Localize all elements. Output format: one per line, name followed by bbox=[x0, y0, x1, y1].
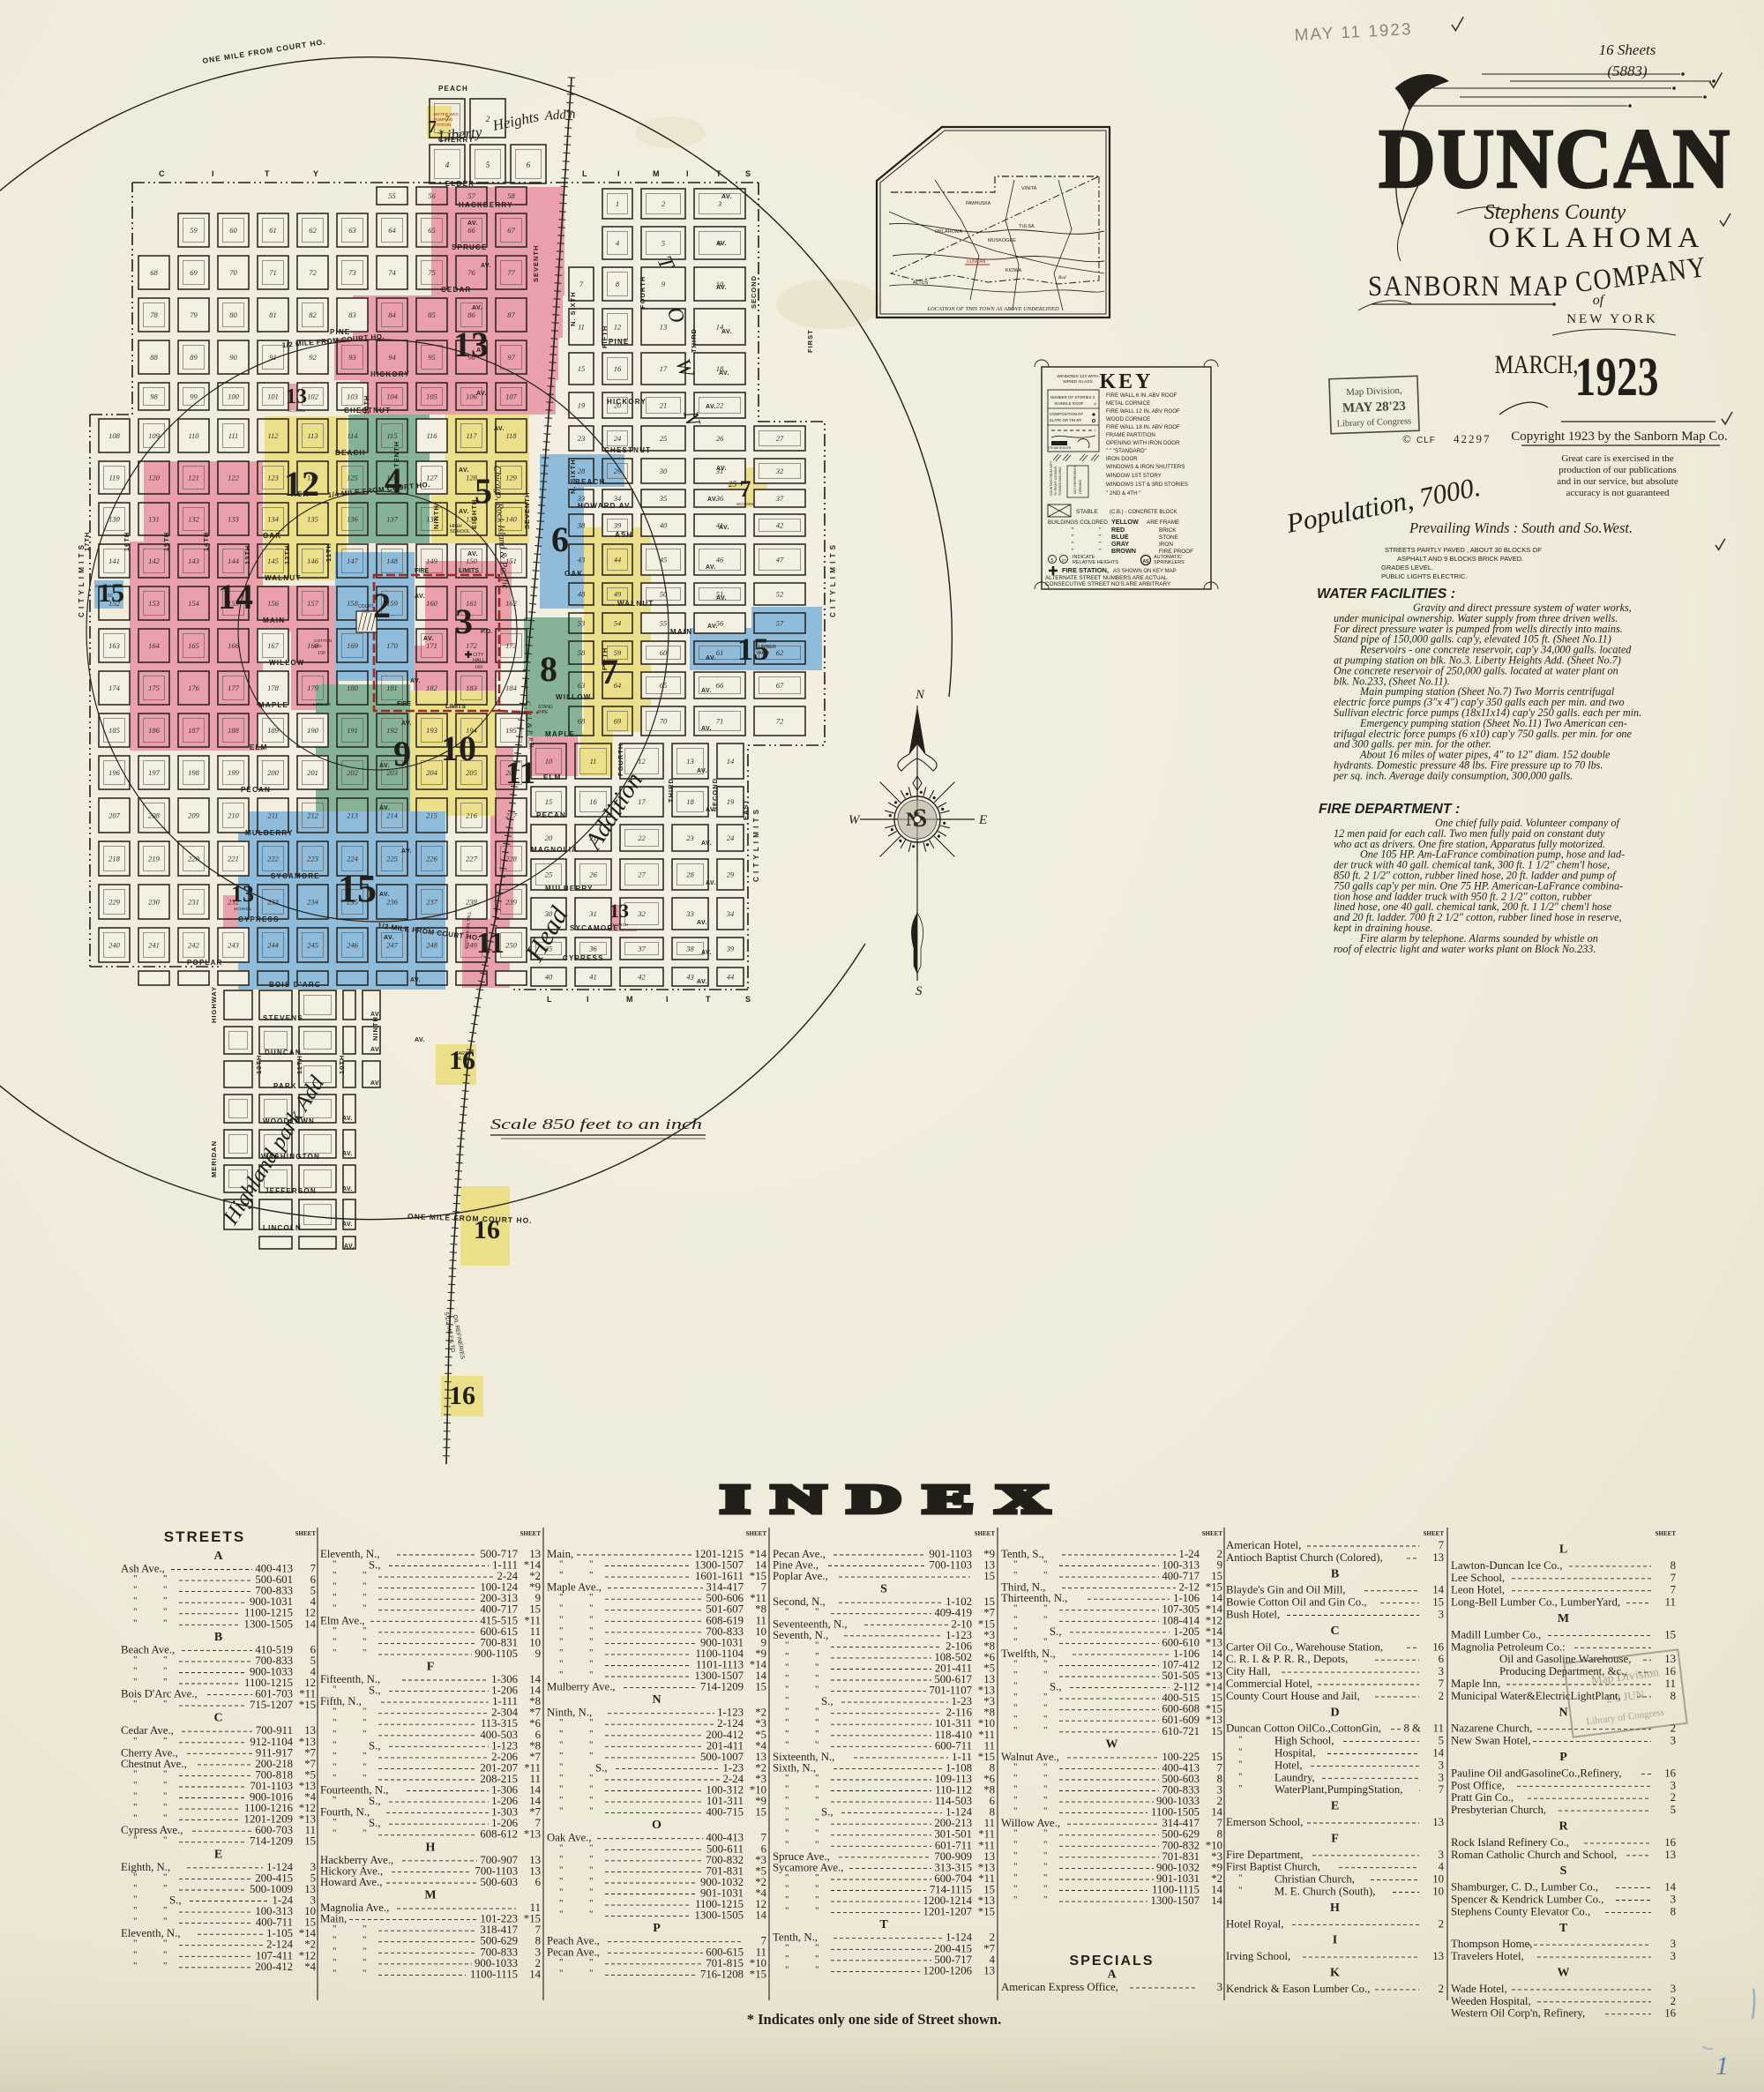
svg-text:171: 171 bbox=[426, 641, 437, 650]
svg-text:14: 14 bbox=[304, 1618, 316, 1630]
svg-text:7: 7 bbox=[1671, 1572, 1677, 1584]
svg-text:46: 46 bbox=[716, 556, 724, 564]
svg-text:120: 120 bbox=[148, 474, 161, 482]
svg-text:": " bbox=[1043, 1850, 1048, 1861]
svg-text:237: 237 bbox=[426, 898, 438, 907]
svg-text:": " bbox=[333, 1707, 337, 1717]
svg-text:SCHOOL: SCHOOL bbox=[234, 907, 252, 912]
svg-text:BROWN: BROWN bbox=[1111, 547, 1136, 555]
svg-text:A: A bbox=[1107, 1968, 1117, 1981]
svg-text:WALNUT: WALNUT bbox=[617, 600, 654, 608]
svg-text:": " bbox=[133, 1939, 138, 1949]
svg-text:13: 13 bbox=[686, 757, 694, 766]
svg-text:HICKORY: HICKORY bbox=[370, 370, 410, 378]
svg-text:": " bbox=[589, 1898, 594, 1909]
svg-text:per sq. inch. Average daily co: per sq. inch. Average daily consumption,… bbox=[1333, 769, 1573, 781]
svg-text:": " bbox=[589, 1592, 594, 1603]
svg-text:PARK: PARK bbox=[273, 1082, 297, 1090]
svg-text:Stephens County Elevator Co.,: Stephens County Elevator Co., bbox=[1451, 1905, 1590, 1917]
svg-text:115: 115 bbox=[386, 431, 397, 440]
svg-text:250: 250 bbox=[505, 941, 518, 950]
svg-text:231: 231 bbox=[188, 898, 199, 907]
svg-text:": " bbox=[815, 1707, 819, 1717]
svg-text:": " bbox=[589, 1670, 594, 1680]
svg-text:THIRD: THIRD bbox=[667, 778, 675, 803]
svg-text:2: 2 bbox=[1439, 1983, 1444, 1995]
svg-text:24: 24 bbox=[727, 833, 735, 842]
svg-text:25: 25 bbox=[729, 480, 737, 489]
svg-text:T: T bbox=[1559, 1922, 1568, 1935]
svg-text:N: N bbox=[652, 1693, 661, 1707]
svg-text:7: 7 bbox=[1671, 1584, 1677, 1596]
svg-text:": " bbox=[815, 1839, 819, 1849]
svg-text:9: 9 bbox=[535, 1647, 541, 1660]
svg-text:183: 183 bbox=[466, 684, 477, 692]
svg-text:L: L bbox=[547, 995, 552, 1004]
svg-text:*4: *4 bbox=[304, 1961, 316, 1973]
svg-text:158: 158 bbox=[347, 599, 359, 608]
svg-text:C: C bbox=[159, 169, 165, 178]
svg-text:Hotel Royal,: Hotel Royal, bbox=[1226, 1917, 1283, 1930]
svg-text:": " bbox=[589, 1570, 594, 1580]
svg-text:BUILDINGS COLORED: BUILDINGS COLORED bbox=[1048, 519, 1108, 526]
svg-text:JEFFERSON: JEFFERSON bbox=[265, 1187, 317, 1195]
svg-text:": " bbox=[363, 1946, 367, 1956]
svg-text:": " bbox=[815, 1717, 819, 1728]
svg-text:CHESTNUT: CHESTNUT bbox=[604, 446, 651, 454]
svg-text:NEW YORK: NEW YORK bbox=[1566, 312, 1658, 326]
svg-text:Madill Lumber Co.,: Madill Lumber Co., bbox=[1451, 1628, 1541, 1640]
svg-text:243: 243 bbox=[228, 941, 239, 950]
svg-text:147: 147 bbox=[347, 557, 359, 565]
svg-text:N: N bbox=[915, 688, 925, 702]
svg-text:High School,: High School, bbox=[1274, 1735, 1334, 1747]
svg-text:Mulberry Ave.,: Mulberry Ave., bbox=[547, 1681, 616, 1693]
svg-text:1201-1207: 1201-1207 bbox=[923, 1906, 973, 1918]
svg-text:5: 5 bbox=[1050, 558, 1053, 564]
svg-text:68: 68 bbox=[150, 268, 158, 277]
svg-text:C I T Y L I M I T S: C I T Y L I M I T S bbox=[78, 544, 86, 617]
svg-text:": " bbox=[785, 1685, 789, 1695]
svg-text:": " bbox=[1013, 1659, 1018, 1670]
svg-text:S: S bbox=[916, 984, 923, 998]
svg-text:AV.: AV. bbox=[716, 466, 727, 472]
svg-text:10: 10 bbox=[1432, 1873, 1444, 1886]
svg-text:101: 101 bbox=[267, 392, 279, 401]
svg-text:Long-Bell Lumber Co., LumberYa: Long-Bell Lumber Co., LumberYard, bbox=[1451, 1596, 1620, 1609]
svg-text:66: 66 bbox=[467, 226, 475, 235]
svg-text:LIMITS: LIMITS bbox=[445, 704, 466, 710]
svg-text:": " bbox=[785, 1806, 789, 1817]
svg-text:25: 25 bbox=[660, 434, 668, 443]
svg-text:American Hotel,: American Hotel, bbox=[1226, 1539, 1301, 1551]
svg-text:15TH: 15TH bbox=[162, 532, 170, 551]
svg-text:STABLE: STABLE bbox=[1076, 509, 1098, 515]
svg-text:14: 14 bbox=[1211, 1894, 1222, 1907]
svg-text:S: S bbox=[880, 1583, 887, 1596]
svg-text:AV.: AV. bbox=[494, 426, 505, 432]
svg-text:KIOWA: KIOWA bbox=[1005, 268, 1021, 273]
svg-text:40: 40 bbox=[545, 973, 553, 982]
svg-text:135: 135 bbox=[307, 515, 318, 524]
svg-text:4: 4 bbox=[1439, 1861, 1445, 1873]
svg-text:13: 13 bbox=[453, 325, 489, 364]
svg-text:AV.: AV. bbox=[342, 1151, 353, 1157]
svg-text:Blayde's Gin and Oil Mill,: Blayde's Gin and Oil Mill, bbox=[1226, 1584, 1346, 1596]
svg-text:": " bbox=[133, 1585, 138, 1595]
svg-text:3: 3 bbox=[1671, 1983, 1676, 1995]
svg-text:VINITA: VINITA bbox=[1021, 186, 1037, 191]
svg-text:55: 55 bbox=[388, 191, 396, 200]
svg-text:60: 60 bbox=[660, 648, 668, 657]
svg-text:145: 145 bbox=[267, 557, 279, 565]
svg-text:W: W bbox=[848, 813, 861, 827]
svg-text:BRICK: BRICK bbox=[1159, 527, 1177, 534]
svg-text:": " bbox=[815, 1795, 819, 1805]
svg-text:44: 44 bbox=[727, 973, 735, 982]
svg-text:90: 90 bbox=[229, 353, 237, 362]
svg-text:": " bbox=[589, 1887, 594, 1898]
svg-text:S.,: S., bbox=[369, 1685, 381, 1697]
svg-text:": " bbox=[785, 1662, 789, 1673]
svg-text:13: 13 bbox=[983, 1964, 995, 1976]
svg-text:20: 20 bbox=[545, 833, 553, 842]
svg-text:200-412: 200-412 bbox=[255, 1961, 293, 1973]
svg-text:SHEET: SHEET bbox=[746, 1530, 767, 1537]
svg-text:C: C bbox=[1330, 1625, 1339, 1638]
svg-text:240: 240 bbox=[108, 941, 121, 950]
svg-text:14: 14 bbox=[218, 577, 253, 616]
svg-text:122: 122 bbox=[228, 474, 240, 482]
svg-text:": " bbox=[133, 1768, 138, 1779]
svg-text:67: 67 bbox=[507, 226, 515, 235]
svg-text:C: C bbox=[213, 1712, 222, 1725]
svg-text:WALNUT: WALNUT bbox=[265, 574, 301, 582]
svg-text:T: T bbox=[879, 1918, 888, 1931]
svg-text:": " bbox=[333, 1559, 337, 1570]
svg-text:7: 7 bbox=[740, 476, 751, 502]
svg-text:E: E bbox=[1331, 1800, 1339, 1813]
svg-text:10: 10 bbox=[545, 757, 553, 766]
svg-text:": " bbox=[333, 1647, 337, 1658]
svg-text:121: 121 bbox=[188, 474, 199, 482]
svg-text:": " bbox=[333, 1739, 337, 1750]
svg-text:88: 88 bbox=[150, 353, 158, 362]
svg-text:40: 40 bbox=[660, 521, 668, 530]
svg-text:204: 204 bbox=[426, 768, 438, 777]
svg-text:148: 148 bbox=[386, 557, 399, 565]
svg-text:AV.: AV. bbox=[370, 1080, 381, 1087]
svg-text:": " bbox=[785, 1773, 789, 1783]
svg-text:6: 6 bbox=[1439, 1653, 1445, 1665]
svg-text:B: B bbox=[1331, 1567, 1339, 1580]
svg-text:Thirteenth, N.,: Thirteenth, N., bbox=[1001, 1592, 1067, 1604]
svg-text:13: 13 bbox=[1664, 1849, 1676, 1861]
svg-text:111: 111 bbox=[228, 431, 239, 440]
svg-text:": " bbox=[163, 1736, 168, 1746]
svg-text:S: S bbox=[745, 169, 751, 178]
svg-text:PUMPING: PUMPING bbox=[434, 117, 453, 122]
svg-text:62: 62 bbox=[309, 226, 317, 235]
svg-text:S.,: S., bbox=[821, 1806, 833, 1819]
svg-text:13: 13 bbox=[1432, 1551, 1444, 1564]
svg-text:": " bbox=[333, 1957, 337, 1968]
svg-text:173: 173 bbox=[505, 641, 517, 650]
svg-text:": " bbox=[589, 1876, 594, 1887]
svg-text:": " bbox=[785, 1884, 789, 1894]
svg-text:": " bbox=[133, 1872, 138, 1882]
svg-text:99: 99 bbox=[190, 392, 198, 401]
svg-text:": " bbox=[333, 1729, 337, 1739]
svg-text:AV.: AV. bbox=[379, 892, 390, 898]
svg-text:STEAM BOILER: STEAM BOILER bbox=[1048, 446, 1072, 450]
svg-text:1: 1 bbox=[1715, 2051, 1729, 2081]
svg-text:ALTERNATE STREET NUMBERS ARE A: ALTERNATE STREET NUMBERS ARE ACTUAL bbox=[1045, 575, 1168, 581]
svg-text:13TH: 13TH bbox=[243, 545, 251, 564]
svg-text:": " bbox=[815, 1894, 819, 1905]
svg-text:AV.: AV. bbox=[342, 1186, 353, 1192]
svg-text:38: 38 bbox=[685, 945, 694, 953]
svg-text:14TH: 14TH bbox=[202, 532, 210, 551]
svg-text:S.,: S., bbox=[169, 1894, 182, 1907]
svg-text:7: 7 bbox=[428, 117, 437, 137]
svg-text:": " bbox=[1043, 1761, 1048, 1772]
svg-text:Elm Ave.,: Elm Ave., bbox=[320, 1614, 365, 1626]
svg-text:": " bbox=[559, 1795, 564, 1805]
svg-text:7: 7 bbox=[1439, 1539, 1445, 1551]
svg-text:S.,: S., bbox=[1050, 1625, 1062, 1638]
svg-text:160: 160 bbox=[475, 665, 482, 670]
svg-text:": " bbox=[333, 1828, 337, 1839]
svg-text:156: 156 bbox=[267, 599, 280, 608]
svg-text:": " bbox=[333, 1717, 337, 1728]
svg-text:32: 32 bbox=[775, 467, 784, 475]
svg-text:AV.: AV. bbox=[719, 525, 729, 531]
svg-text:3: 3 bbox=[1439, 1665, 1444, 1677]
svg-text:78: 78 bbox=[150, 310, 158, 319]
svg-text:": " bbox=[1043, 1614, 1048, 1625]
svg-text:236: 236 bbox=[386, 898, 399, 907]
svg-text:11: 11 bbox=[1433, 1722, 1444, 1735]
svg-text:AV.: AV. bbox=[701, 688, 712, 694]
svg-text:Kendrick & Eason Lumber Co.,: Kendrick & Eason Lumber Co., bbox=[1226, 1983, 1370, 1995]
svg-text:125: 125 bbox=[347, 474, 358, 482]
svg-text:": " bbox=[1043, 1703, 1048, 1714]
svg-text:15: 15 bbox=[98, 579, 124, 608]
svg-text:S.,: S., bbox=[369, 1795, 381, 1807]
svg-text:ELM: ELM bbox=[543, 773, 562, 781]
svg-text:THIRD: THIRD bbox=[690, 328, 698, 353]
svg-text:12: 12 bbox=[614, 323, 622, 332]
svg-text:": " bbox=[815, 1685, 819, 1695]
svg-text:": " bbox=[163, 1916, 168, 1927]
svg-text:": " bbox=[815, 1607, 819, 1618]
svg-text:MERIDAN: MERIDAN bbox=[210, 1140, 218, 1177]
svg-text:": " bbox=[559, 1751, 564, 1761]
svg-text:": " bbox=[589, 1773, 594, 1783]
svg-text:B: B bbox=[214, 1631, 222, 1644]
svg-text:133: 133 bbox=[228, 515, 239, 524]
svg-text:3: 3 bbox=[1439, 1609, 1444, 1621]
svg-text:(5883): (5883) bbox=[1607, 63, 1648, 79]
svg-text:Lee School,: Lee School, bbox=[1451, 1572, 1505, 1584]
svg-text:": " bbox=[363, 1924, 367, 1934]
svg-text:": " bbox=[785, 1717, 789, 1728]
svg-text:170: 170 bbox=[386, 641, 399, 650]
svg-text:": " bbox=[133, 1677, 138, 1687]
svg-text:": " bbox=[559, 1559, 564, 1570]
svg-text:Irving School,: Irving School, bbox=[1226, 1950, 1290, 1962]
svg-text:BEACH: BEACH bbox=[335, 449, 365, 457]
svg-text:17: 17 bbox=[638, 797, 646, 806]
svg-text:8: 8 bbox=[1671, 1690, 1676, 1702]
svg-text:131: 131 bbox=[148, 515, 160, 524]
svg-text:9: 9 bbox=[393, 734, 411, 773]
svg-text:15: 15 bbox=[1211, 1725, 1222, 1737]
svg-text:Fifth, N.,: Fifth, N., bbox=[320, 1695, 362, 1707]
svg-text:": " bbox=[333, 1761, 337, 1772]
svg-text:14: 14 bbox=[755, 1909, 766, 1922]
svg-text:FIRE WALL 12 IN. ABV ROOF: FIRE WALL 12 IN. ABV ROOF bbox=[1106, 408, 1180, 415]
svg-text:65: 65 bbox=[428, 226, 436, 235]
svg-text:WINDOW 1ST STORY: WINDOW 1ST STORY bbox=[1106, 473, 1162, 479]
svg-text:": " bbox=[133, 1736, 138, 1746]
svg-text:": " bbox=[133, 1655, 138, 1665]
svg-text:": " bbox=[133, 1607, 138, 1618]
svg-text:*13: *13 bbox=[524, 1828, 541, 1841]
svg-text:CYPRESS: CYPRESS bbox=[563, 954, 604, 962]
svg-text:80: 80 bbox=[229, 310, 237, 319]
svg-text:": " bbox=[163, 1780, 168, 1790]
svg-text:": " bbox=[333, 1935, 337, 1946]
svg-text:and in our service, but absolu: and in our service, but absolute bbox=[1557, 476, 1678, 487]
svg-text:10: 10 bbox=[441, 728, 476, 768]
svg-text:": " bbox=[163, 1961, 168, 1971]
svg-text:3: 3 bbox=[1671, 1779, 1676, 1791]
svg-text:Prevailing Winds : South and S: Prevailing Winds : South and So.West. bbox=[1409, 519, 1633, 536]
svg-text:ELM: ELM bbox=[250, 743, 268, 751]
svg-text:61: 61 bbox=[716, 648, 724, 657]
svg-text:": " bbox=[589, 1647, 594, 1658]
svg-text:": " bbox=[815, 1739, 819, 1750]
svg-text:27: 27 bbox=[638, 870, 646, 879]
svg-text:AV.: AV. bbox=[384, 935, 394, 941]
svg-text:714-1209: 714-1209 bbox=[250, 1835, 293, 1848]
svg-text:County Court House and Jail,: County Court House and Jail, bbox=[1226, 1690, 1360, 1702]
svg-text:P.O.: P.O. bbox=[481, 629, 492, 635]
svg-text:10TH: 10TH bbox=[363, 395, 370, 415]
svg-text:Y: Y bbox=[313, 169, 318, 178]
svg-text:": " bbox=[559, 1659, 564, 1670]
svg-text:": " bbox=[1238, 1747, 1243, 1758]
svg-text:211: 211 bbox=[267, 811, 278, 820]
svg-text:Emerson School,: Emerson School, bbox=[1226, 1816, 1303, 1828]
svg-text:12TH: 12TH bbox=[283, 545, 291, 564]
svg-text:212: 212 bbox=[307, 811, 319, 820]
svg-text:102: 102 bbox=[307, 392, 319, 401]
svg-text:13: 13 bbox=[231, 881, 254, 907]
svg-text:Great care is exercised in the: Great care is exercised in the bbox=[1561, 453, 1673, 464]
svg-text:AV.: AV. bbox=[415, 594, 425, 600]
svg-text:Walnut Ave.,: Walnut Ave., bbox=[1001, 1751, 1059, 1763]
svg-text:GRADES LEVEL.: GRADES LEVEL. bbox=[1381, 564, 1433, 572]
svg-text:Christian Church,: Christian Church, bbox=[1274, 1873, 1355, 1886]
svg-text:188: 188 bbox=[228, 726, 240, 735]
svg-text:©: © bbox=[1402, 432, 1411, 445]
svg-text:COMPOSITION RF: COMPOSITION RF bbox=[1050, 412, 1084, 416]
svg-text:": " bbox=[785, 1729, 789, 1739]
svg-text:11TH: 11TH bbox=[295, 1055, 303, 1074]
svg-text:": " bbox=[559, 1957, 564, 1968]
svg-text:PECAN: PECAN bbox=[536, 811, 566, 819]
svg-text:LINCOLN: LINCOLN bbox=[263, 1224, 302, 1232]
svg-text:": " bbox=[1043, 1659, 1048, 1670]
svg-text:WINDOWS 1ST & 3RD STORIES: WINDOWS 1ST & 3RD STORIES bbox=[1106, 482, 1188, 488]
svg-text:Maple Inn,: Maple Inn, bbox=[1451, 1677, 1500, 1690]
svg-text:12: 12 bbox=[284, 464, 319, 504]
svg-text:Antioch Baptist Church (Color: Antioch Baptist Church (Colored), bbox=[1226, 1551, 1383, 1564]
svg-text:": " bbox=[559, 1968, 564, 1978]
svg-text:": " bbox=[589, 1659, 594, 1670]
svg-text:": " bbox=[333, 1581, 337, 1592]
svg-text:Travelers Hotel,: Travelers Hotel, bbox=[1451, 1950, 1524, 1962]
svg-text:": " bbox=[785, 1640, 789, 1650]
svg-text:16: 16 bbox=[449, 1381, 475, 1410]
svg-text:": " bbox=[133, 1961, 138, 1971]
svg-text:production of our publications: production of our publications bbox=[1558, 465, 1677, 475]
svg-text:2: 2 bbox=[1439, 1917, 1444, 1930]
svg-text:104: 104 bbox=[386, 392, 399, 401]
svg-text:5: 5 bbox=[1671, 1804, 1676, 1816]
svg-text:143: 143 bbox=[188, 557, 199, 565]
svg-text:": " bbox=[163, 1872, 168, 1882]
svg-text:STEVENS: STEVENS bbox=[263, 1014, 303, 1022]
svg-text:": " bbox=[363, 1707, 367, 1717]
svg-text:OAK: OAK bbox=[564, 570, 583, 578]
svg-text:70: 70 bbox=[660, 717, 668, 726]
svg-text:": " bbox=[333, 1968, 337, 1978]
svg-text:48: 48 bbox=[578, 590, 586, 599]
svg-text:SEVENTH: SEVENTH bbox=[532, 245, 540, 282]
svg-text:Fire Department,: Fire Department, bbox=[1226, 1849, 1303, 1861]
svg-text:23: 23 bbox=[578, 434, 586, 443]
svg-text:": " bbox=[163, 1677, 168, 1687]
svg-text:": " bbox=[1238, 1771, 1243, 1782]
svg-text:AV.: AV. bbox=[697, 768, 707, 774]
svg-text:230: 230 bbox=[148, 898, 161, 907]
svg-text:KEY: KEY bbox=[1099, 370, 1153, 393]
svg-text:Eleventh, N.,: Eleventh, N., bbox=[121, 1927, 181, 1939]
svg-text:23: 23 bbox=[686, 833, 694, 842]
svg-text:3: 3 bbox=[1671, 1938, 1676, 1950]
svg-text:": " bbox=[133, 1894, 138, 1905]
svg-text:FOURTH: FOURTH bbox=[639, 276, 647, 309]
svg-text:225: 225 bbox=[386, 855, 398, 863]
svg-text:141: 141 bbox=[108, 557, 120, 565]
svg-text:American Express Office,: American Express Office, bbox=[1001, 1981, 1118, 1993]
svg-text:S.,: S., bbox=[369, 1559, 381, 1572]
svg-text:247: 247 bbox=[386, 941, 399, 950]
svg-text:185: 185 bbox=[108, 726, 120, 735]
svg-text:11: 11 bbox=[590, 757, 597, 766]
svg-text:117: 117 bbox=[466, 431, 477, 440]
svg-text:224: 224 bbox=[347, 855, 359, 863]
svg-text:LOCATION OF THIS TOWN AS ABOVE: LOCATION OF THIS TOWN AS ABOVE UNDERLINE… bbox=[926, 306, 1059, 312]
svg-text:2: 2 bbox=[373, 586, 391, 625]
svg-text:M: M bbox=[653, 169, 660, 178]
svg-text:210: 210 bbox=[228, 811, 240, 820]
svg-text:Red: Red bbox=[1058, 275, 1066, 280]
